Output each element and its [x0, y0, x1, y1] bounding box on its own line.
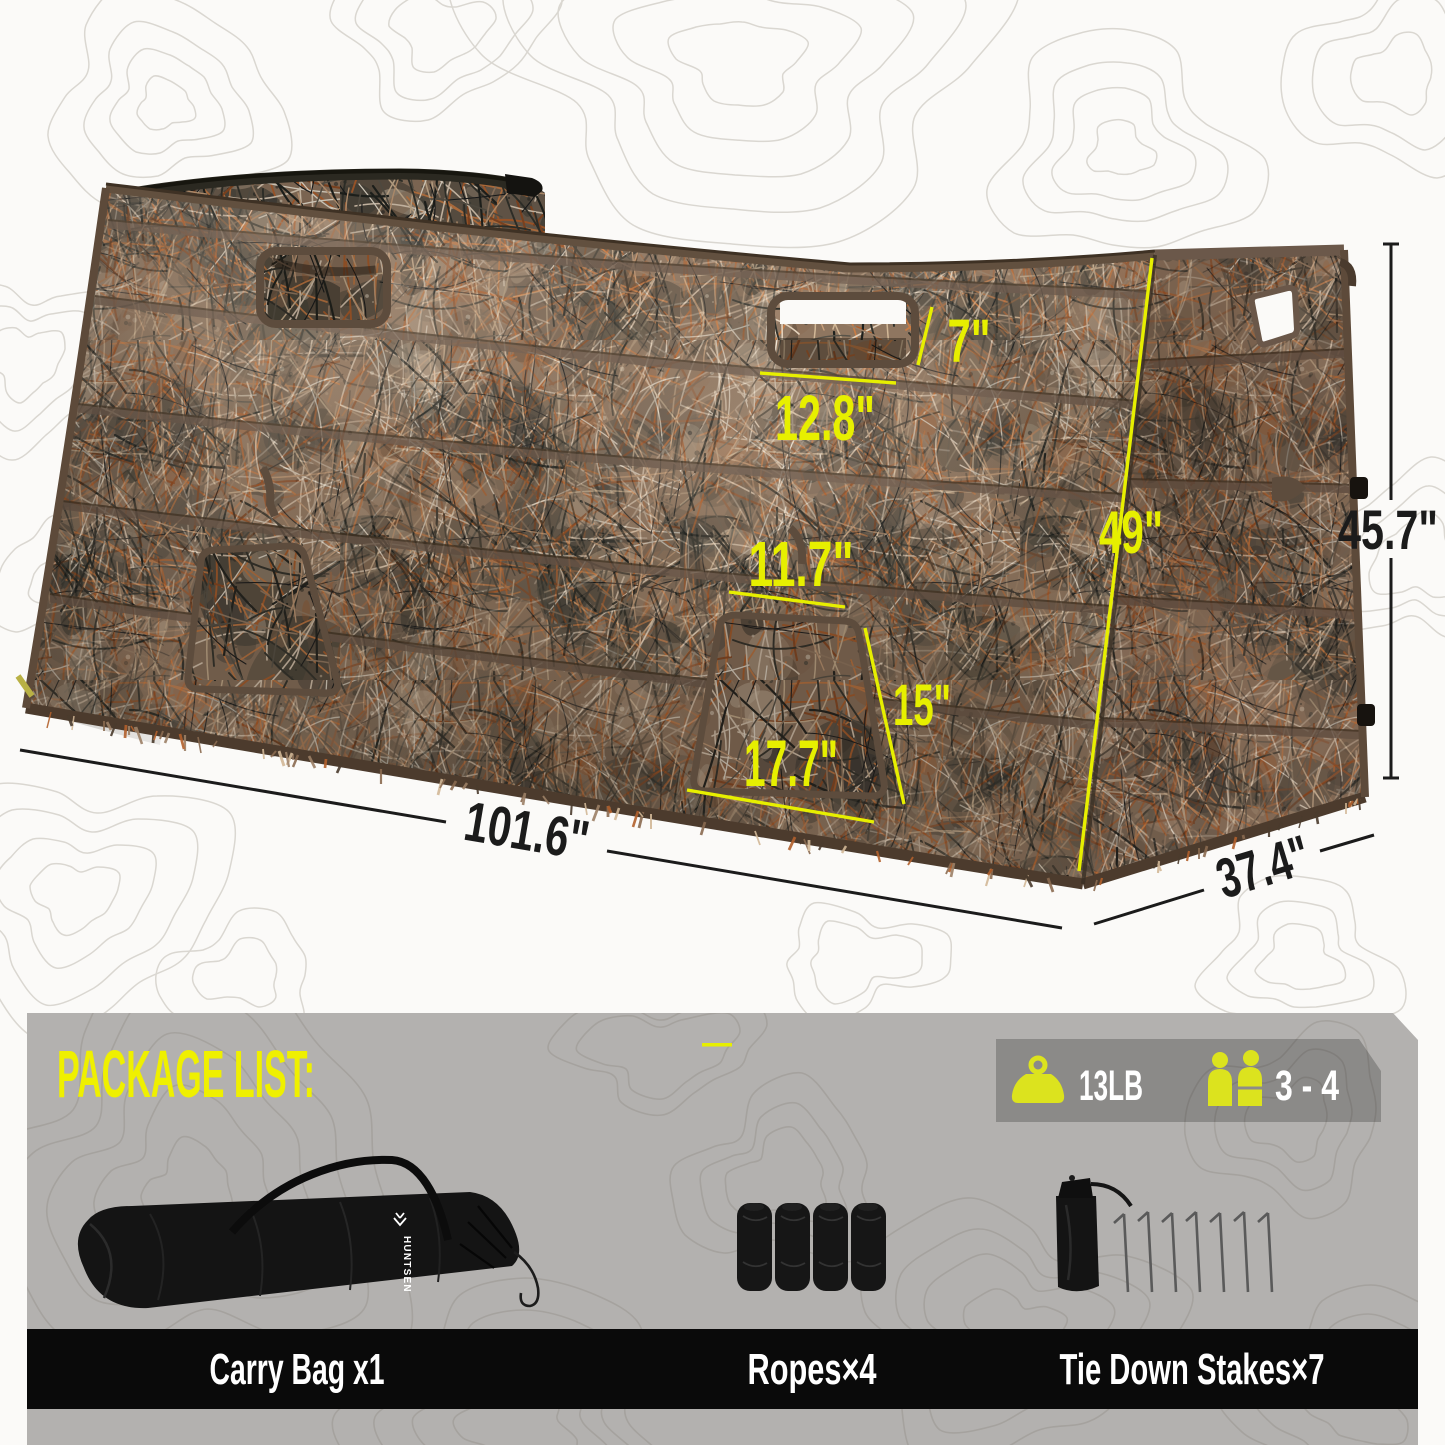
svg-text:15": 15" — [893, 673, 951, 738]
svg-text:7": 7" — [948, 307, 991, 375]
svg-text:45.7": 45.7" — [1338, 498, 1438, 561]
svg-text:12.8": 12.8" — [775, 382, 875, 454]
svg-text:11.7": 11.7" — [749, 528, 854, 600]
svg-text:49": 49" — [1099, 499, 1163, 566]
svg-text:Ropes×4: Ropes×4 — [748, 1345, 877, 1394]
svg-text:13LB: 13LB — [1079, 1062, 1143, 1110]
svg-text:17.7": 17.7" — [744, 726, 838, 800]
svg-text:Tie Down Stakes×7: Tie Down Stakes×7 — [1060, 1345, 1325, 1394]
svg-text:Carry Bag x1: Carry Bag x1 — [210, 1345, 385, 1394]
svg-text:HUNTSEN: HUNTSEN — [401, 1236, 412, 1293]
svg-text:3 - 4: 3 - 4 — [1275, 1062, 1339, 1110]
svg-text:PACKAGE LIST:: PACKAGE LIST: — [57, 1037, 315, 1112]
